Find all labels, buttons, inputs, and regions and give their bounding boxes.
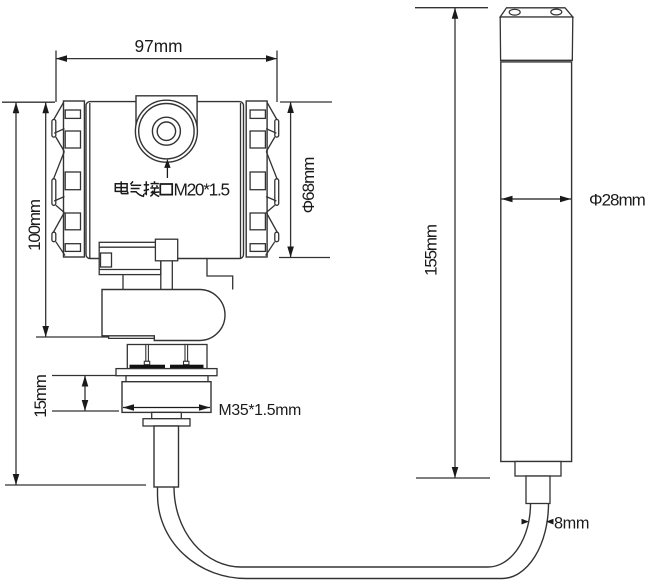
svg-text:100mm: 100mm [25, 199, 44, 251]
svg-text:15mm: 15mm [31, 374, 50, 417]
svg-text:97mm: 97mm [134, 36, 182, 56]
svg-text:8mm: 8mm [554, 515, 589, 533]
svg-text:Φ28mm: Φ28mm [589, 190, 646, 209]
svg-text:M35*1.5mm: M35*1.5mm [219, 402, 302, 419]
svg-text:M20*1.5: M20*1.5 [174, 180, 230, 200]
svg-text:Φ68mm: Φ68mm [299, 157, 318, 214]
svg-text:155mm: 155mm [422, 224, 441, 276]
